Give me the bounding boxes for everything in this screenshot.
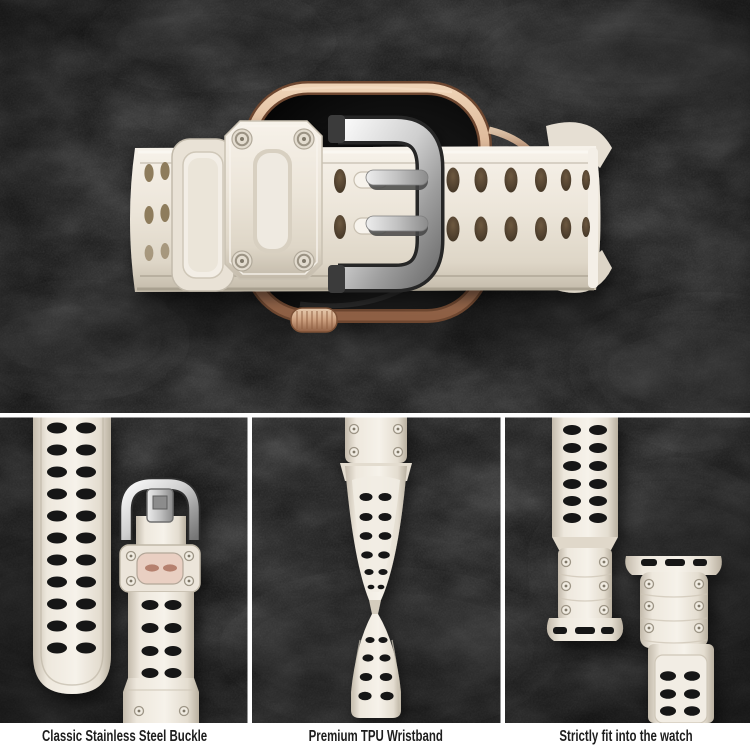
screw-icon	[645, 602, 654, 611]
caption-buckle: Classic Stainless Steel Buckle	[0, 723, 250, 750]
screw-icon	[394, 448, 403, 457]
connector-end	[123, 678, 199, 723]
vertical-divider-1	[248, 417, 253, 723]
screw-icon	[232, 251, 252, 271]
screw-icon	[180, 707, 189, 716]
screw-icon	[695, 624, 704, 633]
screw-icon	[695, 580, 704, 589]
screw-icon	[562, 558, 571, 567]
screw-icon	[695, 602, 704, 611]
buckle-assembly	[120, 484, 200, 723]
caption-fit: Strictly fit into the watch	[502, 723, 750, 750]
strap-with-holes	[33, 416, 111, 694]
connector-slots	[553, 627, 614, 634]
screw-icon	[600, 582, 609, 591]
band-center-plate	[225, 121, 322, 279]
screw-icon	[185, 552, 194, 561]
horizontal-divider	[0, 413, 750, 418]
screw-icon	[294, 251, 314, 271]
screw-icon	[600, 558, 609, 567]
screw-icon	[600, 606, 609, 615]
screw-icon	[645, 580, 654, 589]
plate-window	[257, 153, 288, 249]
band-right-end	[588, 148, 598, 288]
digital-crown-icon	[291, 308, 337, 332]
buckle-hinge-bottom	[328, 265, 345, 293]
vertical-divider-2	[501, 417, 506, 723]
screw-icon	[185, 577, 194, 586]
caption-strip: Classic Stainless Steel Buckle Premium T…	[0, 723, 750, 750]
screw-icon	[394, 425, 403, 434]
screw-icon	[135, 707, 144, 716]
caption-wristband-text: Premium TPU Wristband	[309, 723, 443, 750]
strap-below-keeper	[128, 592, 194, 678]
caption-fit-text: Strictly fit into the watch	[559, 723, 692, 750]
screw-icon	[562, 606, 571, 615]
caption-wristband: Premium TPU Wristband	[250, 723, 502, 750]
screw-icon	[294, 129, 314, 149]
buckle-hinge-top	[328, 115, 345, 143]
screw-icon	[350, 425, 359, 434]
keeper-plate	[120, 545, 200, 592]
screw-icon	[127, 577, 136, 586]
screw-icon	[562, 582, 571, 591]
product-artwork	[0, 0, 750, 750]
product-image: Classic Stainless Steel Buckle Premium T…	[0, 0, 750, 750]
screw-icon	[127, 552, 136, 561]
screw-icon	[645, 624, 654, 633]
connector-piece-left	[547, 416, 623, 641]
screw-icon	[232, 129, 252, 149]
connector-slots	[641, 559, 707, 566]
screw-icon	[350, 448, 359, 457]
caption-buckle-text: Classic Stainless Steel Buckle	[42, 723, 207, 750]
